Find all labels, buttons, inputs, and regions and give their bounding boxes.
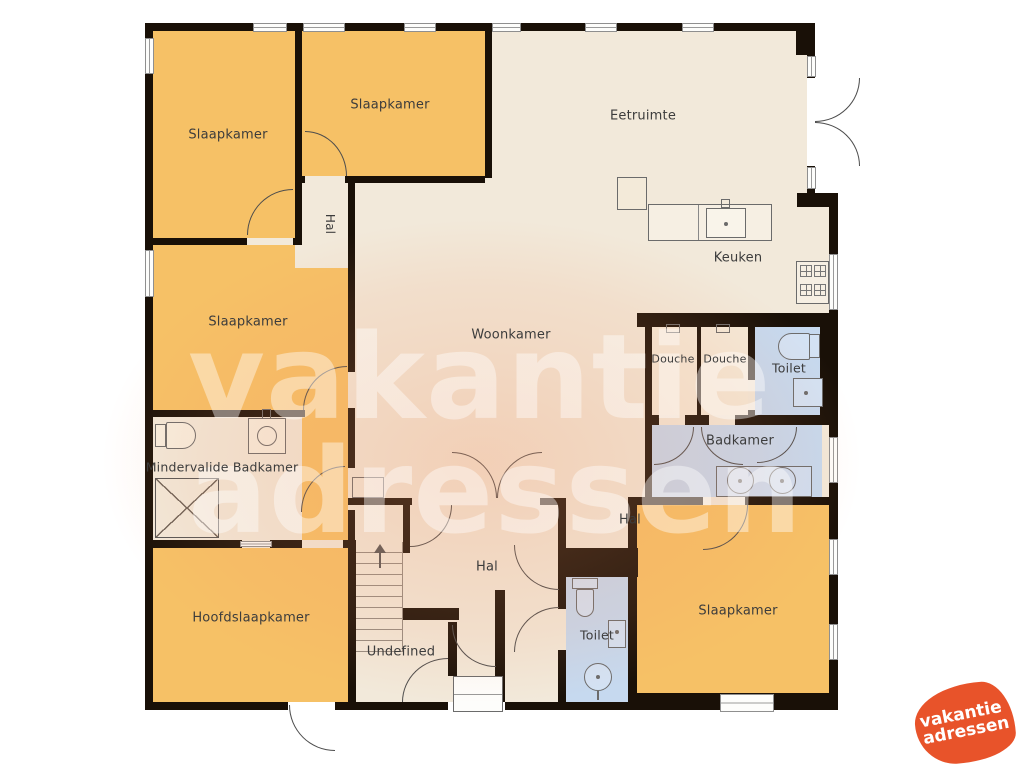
wall-v8 bbox=[628, 497, 637, 702]
wall-h6a bbox=[348, 498, 412, 505]
window-kitchen bbox=[829, 254, 838, 310]
closet-woonkamer bbox=[352, 477, 384, 498]
wall-h4c bbox=[735, 415, 830, 425]
wall-v2a bbox=[348, 176, 355, 372]
label-hal-top: Hal bbox=[323, 214, 337, 234]
label-hal-mid: Hal bbox=[619, 513, 641, 528]
wall-h8a bbox=[152, 540, 242, 548]
wall-outer-left bbox=[145, 23, 153, 710]
window-right-1 bbox=[807, 56, 816, 77]
label-eetruimte: Eetruimte bbox=[610, 109, 676, 124]
window-top-6 bbox=[682, 23, 714, 32]
wall-h5a bbox=[637, 497, 703, 505]
label-slaapkamer-tm: Slaapkamer bbox=[350, 98, 429, 113]
label-mindervalide: Mindervalide Badkamer bbox=[146, 460, 299, 475]
toilet-bottom-roundsink-stem bbox=[597, 691, 599, 700]
label-slaapkamer-ml: Slaapkamer bbox=[208, 315, 287, 330]
wall-v5 bbox=[645, 313, 652, 497]
wall-v4 bbox=[485, 23, 492, 178]
wall-h2a bbox=[295, 176, 305, 183]
wall-h7 bbox=[152, 410, 305, 417]
window-top-4 bbox=[492, 23, 521, 32]
wall-v2b bbox=[348, 408, 355, 468]
toilet-top-bowl bbox=[778, 333, 810, 360]
toilet-top-sink bbox=[793, 378, 823, 407]
toilet-bottom-sink-small-drain bbox=[615, 630, 619, 634]
stove-burner-4 bbox=[814, 284, 826, 296]
wall-right-thick-toiletrow bbox=[820, 313, 832, 425]
door-arc-terrace-lower bbox=[815, 122, 860, 166]
wall-v10 bbox=[403, 505, 410, 553]
label-toilet-bottom: Toilet bbox=[580, 628, 614, 643]
wall-v2d bbox=[348, 540, 356, 702]
wall-outer-top bbox=[145, 23, 815, 31]
wall-v9a bbox=[558, 505, 566, 548]
logo-text: vakantie adressen bbox=[919, 698, 1011, 749]
wall-outer-bottom-1 bbox=[145, 702, 288, 710]
toilet-bottom-bowl bbox=[576, 589, 594, 617]
mv-sink-faucet bbox=[262, 409, 271, 419]
wall-h8b bbox=[270, 540, 302, 548]
wall-h1a bbox=[152, 238, 247, 245]
wall-h2b bbox=[345, 176, 485, 183]
shower-mixer-2 bbox=[716, 324, 730, 333]
mv-sink-basin bbox=[257, 426, 277, 446]
label-toilet-top: Toilet bbox=[772, 361, 806, 376]
window-top-3 bbox=[404, 23, 436, 32]
wall-h1b bbox=[293, 238, 302, 245]
stairs-rail bbox=[402, 542, 403, 652]
wall-v6 bbox=[697, 320, 701, 417]
wall-v7a bbox=[748, 318, 755, 380]
kitchen-faucet bbox=[721, 199, 730, 208]
label-slaapkamer-tl: Slaapkamer bbox=[188, 128, 267, 143]
kitchen-counter-divider bbox=[698, 205, 699, 240]
mv-toilet-tank bbox=[155, 424, 166, 447]
room-douche-2 bbox=[701, 327, 748, 415]
shower-mixer-1 bbox=[666, 324, 680, 333]
slider-mindervalide bbox=[240, 541, 272, 547]
label-undefined: Undefined bbox=[367, 645, 435, 660]
column-eetruimte bbox=[617, 177, 647, 210]
wall-v9c bbox=[558, 650, 566, 702]
label-badkamer: Badkamer bbox=[706, 434, 774, 449]
window-bay-bottom bbox=[720, 694, 774, 712]
wall-v9b bbox=[558, 577, 566, 609]
wall-h5b bbox=[745, 497, 830, 505]
label-hoofdslaapkamer: Hoofdslaapkamer bbox=[192, 611, 309, 626]
wall-h8c bbox=[343, 540, 355, 548]
wall-outer-bottom-2 bbox=[335, 702, 448, 710]
stairs-arrow-head bbox=[374, 544, 386, 553]
window-right-2 bbox=[807, 167, 816, 189]
stove-burner-3 bbox=[800, 284, 812, 296]
mv-shower-tray bbox=[155, 478, 219, 538]
toilet-bottom-tank bbox=[572, 578, 598, 589]
room-douche-1 bbox=[652, 327, 697, 415]
label-hal-bottom: Hal bbox=[476, 560, 498, 575]
wall-h4a bbox=[645, 415, 659, 425]
wall-stub-h10 bbox=[403, 608, 459, 620]
door-arc-terrace-upper bbox=[815, 78, 860, 122]
label-slaapkamer-br: Slaapkamer bbox=[698, 604, 777, 619]
window-top-2 bbox=[303, 23, 345, 32]
wall-h4b bbox=[685, 415, 709, 425]
wall-band-halright bbox=[558, 548, 638, 577]
label-douche-1: Douche bbox=[651, 353, 694, 366]
window-slaapkamer-br-1 bbox=[829, 539, 838, 575]
wall-v1 bbox=[295, 23, 302, 238]
mv-toilet-bowl bbox=[166, 422, 196, 449]
label-douche-2: Douche bbox=[703, 353, 746, 366]
door-arc-exit-bottom bbox=[289, 705, 335, 751]
porch-line bbox=[454, 694, 502, 695]
floorplan-canvas: Slaapkamer Slaapkamer Eetruimte Keuken H… bbox=[0, 0, 1024, 768]
window-slaapkamer-br-2 bbox=[829, 624, 838, 660]
window-left-2 bbox=[145, 250, 154, 297]
label-keuken: Keuken bbox=[714, 251, 763, 266]
wall-h6b bbox=[540, 498, 566, 505]
wall-corner-topright bbox=[796, 23, 815, 55]
stairs-arrow-line bbox=[379, 552, 381, 568]
badkamer-sink-2-drain bbox=[780, 479, 784, 483]
window-left-1 bbox=[145, 38, 154, 74]
wall-v2c bbox=[348, 510, 355, 542]
window-top-5 bbox=[585, 23, 617, 32]
stove-burner-1 bbox=[800, 265, 812, 277]
window-top-1 bbox=[253, 23, 287, 32]
toilet-top-sink-drain bbox=[804, 391, 808, 395]
stove-burner-2 bbox=[814, 265, 826, 277]
kitchen-sink-drain bbox=[724, 222, 728, 226]
vakantieadressen-logo: vakantie adressen bbox=[912, 680, 1017, 767]
window-badkamer bbox=[829, 437, 838, 483]
badkamer-sink-1-drain bbox=[738, 479, 742, 483]
toilet-bottom-roundsink-drain bbox=[596, 675, 600, 679]
label-woonkamer: Woonkamer bbox=[471, 328, 550, 343]
